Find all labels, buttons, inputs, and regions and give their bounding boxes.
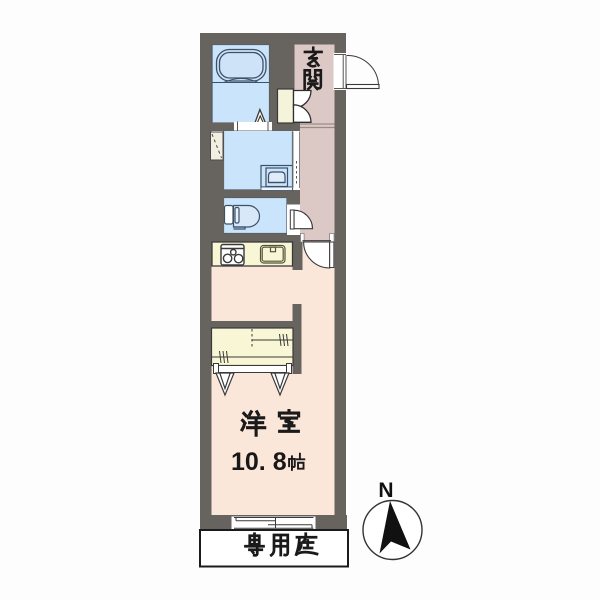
svg-text:N: N [378,479,393,502]
svg-text:10. 8: 10. 8 [231,448,287,476]
